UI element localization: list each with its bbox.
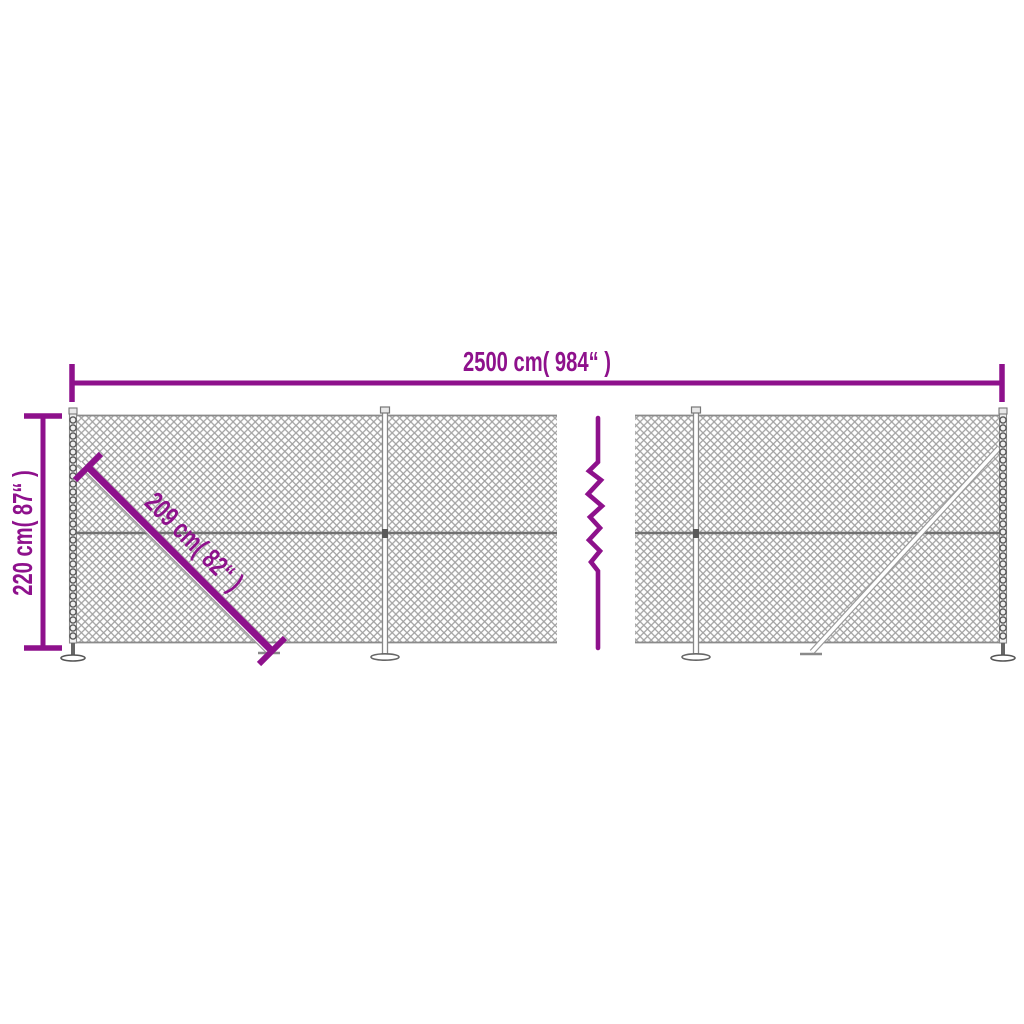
chain-link-mesh-right bbox=[635, 415, 1003, 643]
height-dimension-label: 220 cm( 87“ ) bbox=[9, 470, 37, 596]
fence-dimension-diagram: 2500 cm( 984“ ) 220 cm( 87“ ) 209 cm( 82… bbox=[0, 0, 1024, 1024]
width-dimension-label: 2500 cm( 984“ ) bbox=[463, 348, 611, 376]
break-symbol-zigzag bbox=[588, 418, 602, 648]
fence-section-right bbox=[635, 407, 1015, 661]
fence-section-left bbox=[61, 407, 557, 661]
